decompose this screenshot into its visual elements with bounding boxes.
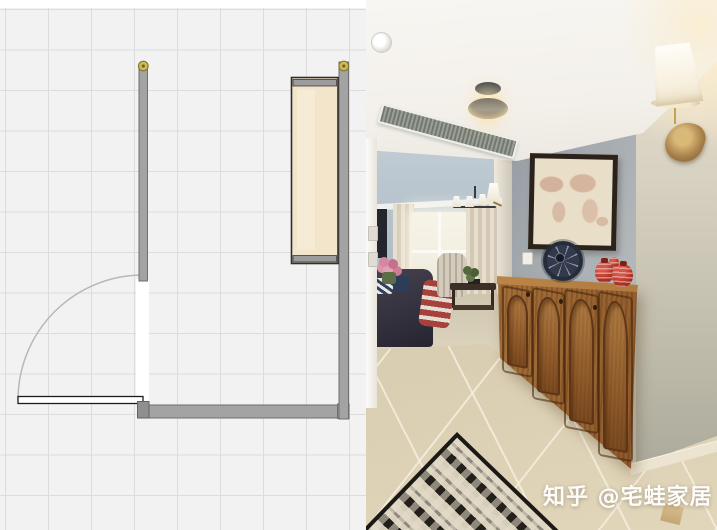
hallway-photo: 知乎 @宅蛙家居 xyxy=(366,0,717,530)
sideboard-door xyxy=(532,287,565,405)
jar-lid xyxy=(601,258,608,263)
sideboard-door xyxy=(502,285,533,378)
screenshot-root: 知乎 @宅蛙家居 xyxy=(0,0,717,530)
zhihu-watermark: 知乎 @宅蛙家居 xyxy=(543,479,713,511)
floorplan-panel xyxy=(0,0,366,530)
arched-panel xyxy=(537,295,560,396)
cabinet-bottom-edge xyxy=(293,256,337,263)
door-knob xyxy=(559,299,563,304)
door-leaf xyxy=(18,397,143,404)
bottom-wall-left-cap xyxy=(138,402,150,419)
light-switch xyxy=(368,252,378,267)
door-knob xyxy=(526,292,530,297)
red-jar xyxy=(595,261,614,283)
wall-node-left xyxy=(139,61,149,71)
door-swing-arc xyxy=(18,275,143,400)
gear-hub xyxy=(555,253,565,263)
wall-node-right xyxy=(339,61,349,71)
near-doorframe-edge xyxy=(366,138,377,408)
arched-panel xyxy=(507,293,528,369)
arched-panel xyxy=(569,297,594,426)
floorplan-drawing xyxy=(0,0,366,530)
left-wall xyxy=(139,65,148,282)
cabinet-top-edge xyxy=(293,80,337,87)
tall-cabinet xyxy=(292,78,339,264)
bottom-wall xyxy=(138,405,349,418)
gear-ornament xyxy=(542,241,578,281)
jar-lid xyxy=(620,261,627,266)
light-switch xyxy=(368,226,378,241)
door-knob xyxy=(593,305,597,310)
right-wall xyxy=(339,62,349,419)
arched-panel xyxy=(603,299,628,454)
door-opening xyxy=(136,279,149,401)
cabinet-highlight xyxy=(297,90,315,250)
sideboard-end-panel xyxy=(598,291,633,463)
sideboard-door xyxy=(564,289,599,435)
